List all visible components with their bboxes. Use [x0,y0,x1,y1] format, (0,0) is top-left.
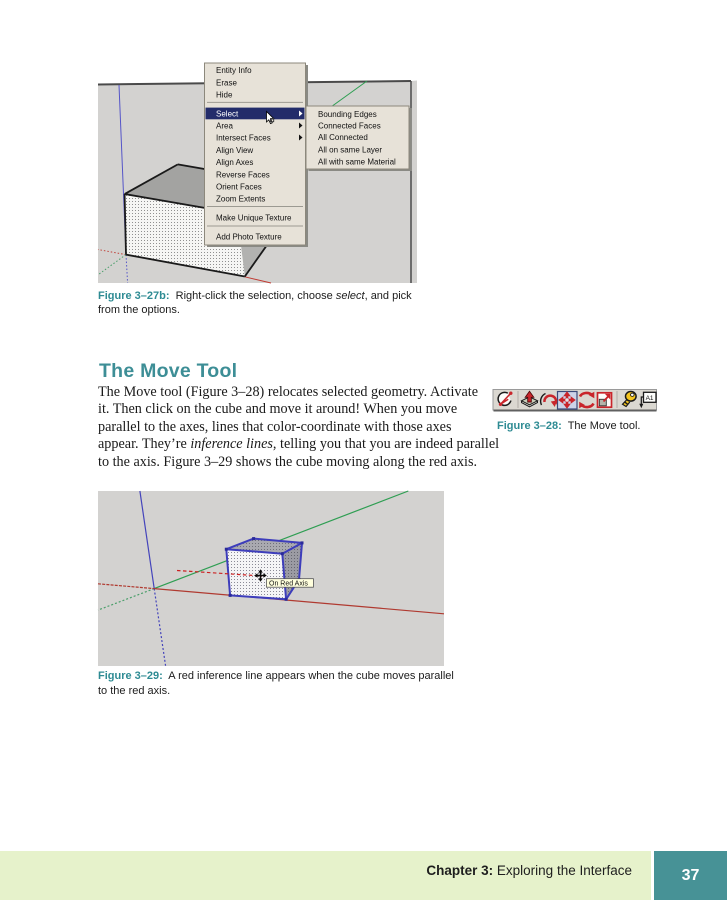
svg-text:A1: A1 [646,395,654,402]
svg-text:On Red Axis: On Red Axis [269,581,308,588]
